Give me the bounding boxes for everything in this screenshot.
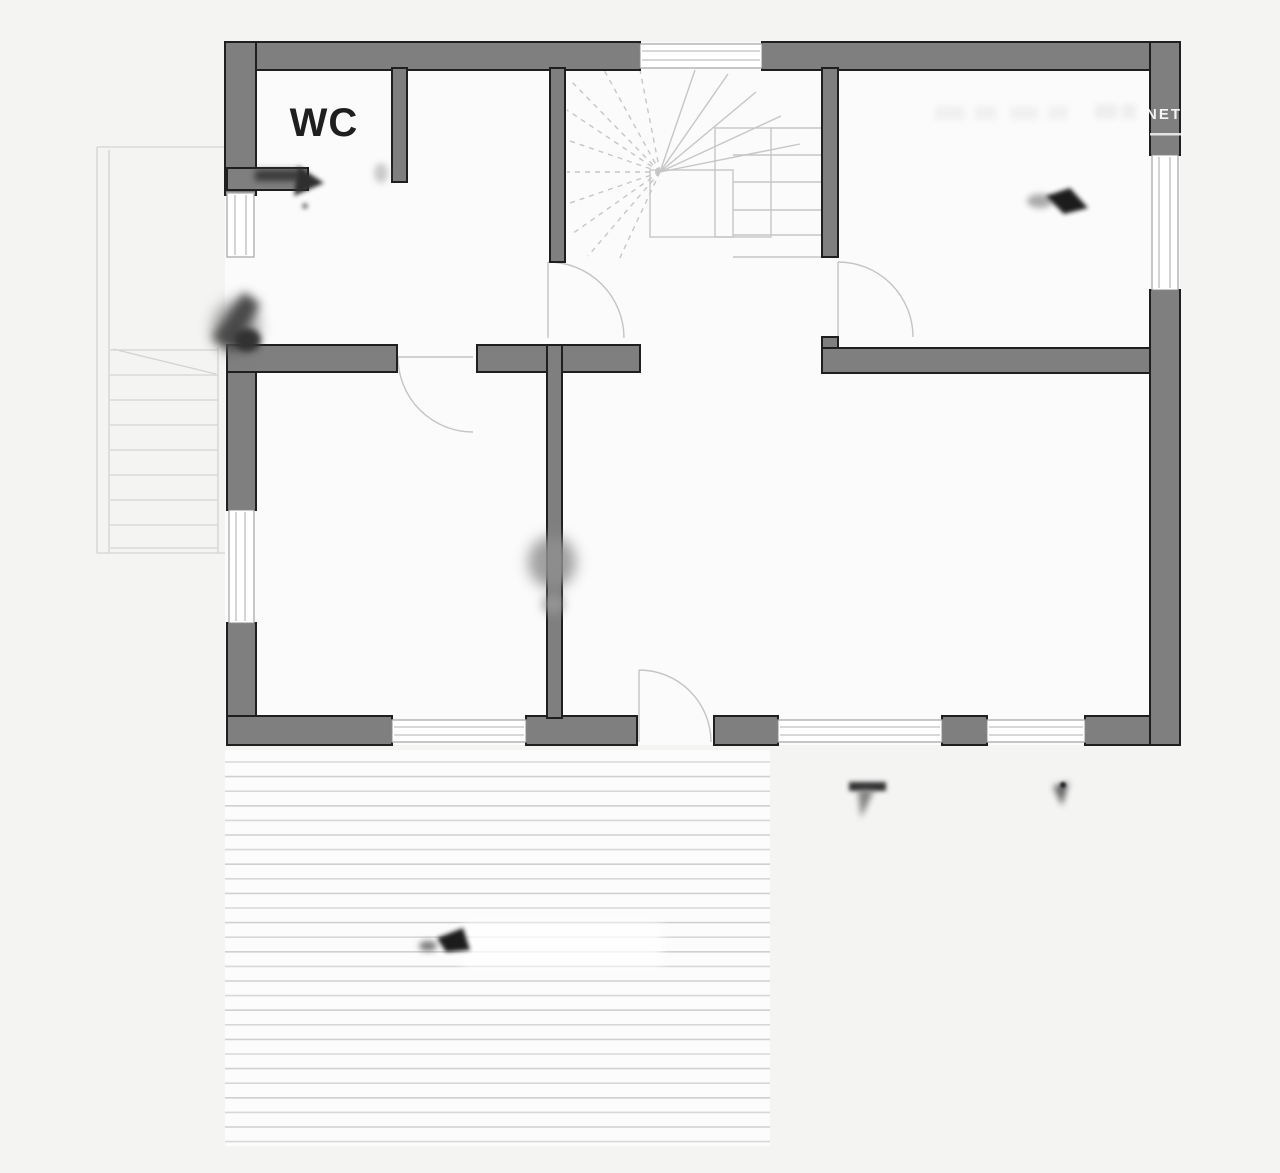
building-footprint	[225, 42, 1180, 745]
wall-wc-right	[392, 68, 407, 182]
wall-mid-right	[822, 348, 1150, 373]
window-bottom-center	[778, 720, 942, 742]
wall-bottom-mid	[714, 716, 778, 745]
wall-stair-right	[822, 68, 838, 257]
window-bottom-right	[987, 720, 1085, 742]
wall-top-left	[225, 42, 640, 70]
wall-bottom-tee	[526, 716, 637, 745]
smudge-hall-wisp	[374, 163, 388, 183]
window-left-upper	[227, 193, 254, 257]
window-right	[1152, 155, 1178, 290]
watermark-net-text: NET	[1146, 106, 1182, 123]
wall-bottom-pier	[942, 716, 987, 745]
wall-right-top	[1150, 42, 1180, 155]
wall-top-right	[762, 42, 1180, 70]
window-bottom-slider	[392, 720, 526, 742]
wall-right-main	[1150, 290, 1180, 745]
wall-bottom-left	[227, 716, 392, 745]
window-top-stairwell	[640, 44, 762, 68]
wall-hall-stair	[550, 68, 565, 262]
floor-plan-page: WC NET	[0, 0, 1280, 1173]
window-left-lower	[229, 510, 254, 623]
wall-center-vertical	[547, 345, 562, 718]
floor-plan-drawing: WC NET	[0, 0, 1280, 1173]
watermark-underline	[1150, 133, 1182, 136]
wc-room-label: WC	[290, 101, 359, 145]
